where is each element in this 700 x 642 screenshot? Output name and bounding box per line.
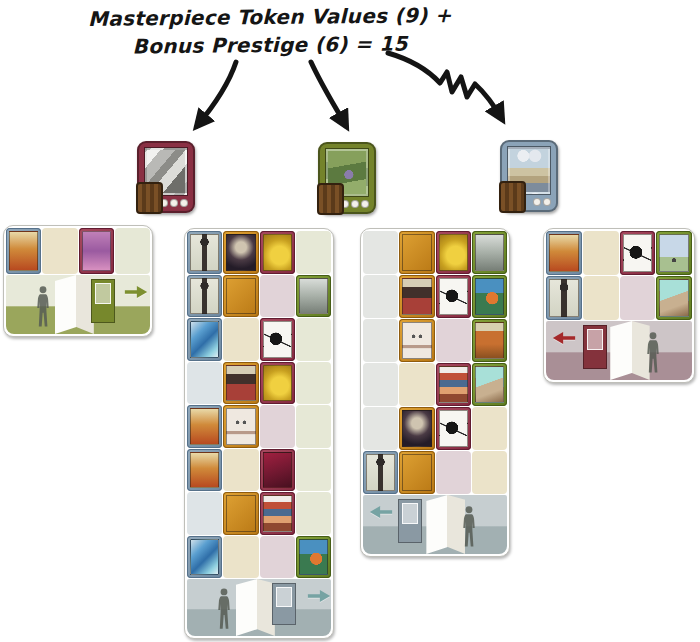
painting-blue-frame: [6, 228, 41, 274]
artwork-portrait-red: [226, 365, 255, 402]
empty-slot: [223, 318, 258, 361]
artwork-landscape-autumn: [475, 322, 504, 359]
painting-orange-frame: [399, 275, 434, 318]
artwork-figure: [190, 278, 219, 315]
artwork-landscape-colorful: [475, 278, 504, 315]
empty-slot: [296, 362, 331, 405]
artwork-landscape-beach: [475, 366, 504, 403]
artwork-figure: [549, 279, 579, 317]
artwork-landscape-beach: [659, 279, 689, 317]
annotation-title: Masterpiece Token Values (9) + Bonus Pre…: [60, 1, 481, 62]
painting-grid: [187, 231, 331, 578]
gallery-door: [272, 583, 296, 625]
painting-orange-frame: [399, 319, 434, 362]
artwork-masterpiece: [263, 321, 292, 358]
gallery-scene: [6, 275, 150, 334]
gallery-scene: [546, 321, 692, 380]
artwork-still-life: [9, 231, 38, 271]
artwork-landscape-sky: [659, 234, 689, 272]
empty-slot: [363, 231, 398, 274]
empty-slot: [363, 407, 398, 450]
gallery-board-left: [3, 225, 153, 337]
empty-slot: [296, 492, 331, 535]
artwork-landscape-colorful: [299, 539, 328, 576]
artwork-still-life: [190, 452, 219, 489]
painting-maroon-frame: [260, 362, 295, 405]
empty-slot: [296, 231, 331, 274]
artwork-purple-abstract: [82, 231, 111, 271]
token-value-pips: [533, 198, 551, 206]
value-pip: [361, 200, 369, 208]
direction-arrow-left: [552, 330, 576, 346]
crate-icon: [499, 181, 526, 213]
empty-slot: [472, 451, 507, 494]
painting-orange-frame: [399, 451, 434, 494]
crate-icon: [136, 182, 163, 214]
gallery-door: [91, 279, 115, 323]
direction-arrow-left: [369, 504, 393, 520]
artwork-sunset-stripes: [439, 366, 468, 403]
artwork-masterpiece: [623, 234, 653, 272]
empty-slot: [436, 319, 471, 362]
annotation-arrow-2: [311, 62, 346, 126]
painting-maroon-frame: [260, 231, 295, 274]
wall-corner: [236, 579, 275, 636]
visitor-silhouette: [458, 502, 480, 553]
annotation-arrow-1: [197, 62, 236, 126]
value-pip: [543, 198, 551, 206]
masterpiece-token-green: [318, 142, 376, 214]
crate-icon: [317, 183, 344, 215]
empty-slot: [223, 536, 258, 579]
gallery-scene: [187, 579, 331, 636]
painting-maroon-frame: [79, 228, 114, 274]
painting-orange-frame: [399, 231, 434, 274]
painting-maroon-frame: [436, 407, 471, 450]
artwork-portrait-dark: [402, 410, 431, 447]
value-pip: [351, 200, 359, 208]
gallery-scene: [363, 495, 507, 554]
painting-orange-frame: [223, 405, 258, 448]
empty-slot: [187, 492, 222, 535]
artwork-figure: [366, 454, 395, 491]
visitor-silhouette: [642, 328, 664, 379]
painting-blue-frame: [187, 405, 222, 448]
empty-slot: [436, 451, 471, 494]
painting-maroon-frame: [260, 492, 295, 535]
painting-blue-frame: [187, 536, 222, 579]
artwork-abstract-blue: [190, 321, 219, 358]
artwork-figure: [190, 234, 219, 271]
painting-grid: [546, 231, 692, 320]
masterpiece-token-maroon: [137, 141, 195, 213]
empty-slot: [363, 275, 398, 318]
gallery-board-right: [543, 228, 695, 383]
painting-blue-frame: [546, 231, 582, 275]
artwork-masterpiece: [439, 410, 468, 447]
door-painting: [402, 503, 418, 524]
painting-green-frame: [472, 231, 507, 274]
painting-green-frame: [656, 231, 692, 275]
painting-maroon-frame: [436, 275, 471, 318]
artwork-fish-teal: [226, 495, 255, 532]
empty-slot: [115, 228, 150, 274]
painting-orange-frame: [223, 492, 258, 535]
artwork-portrait-dark: [226, 234, 255, 271]
artwork-fish-teal: [402, 454, 431, 491]
value-pip: [533, 198, 541, 206]
empty-slot: [187, 362, 222, 405]
painting-blue-frame: [187, 275, 222, 318]
painting-maroon-frame: [260, 318, 295, 361]
empty-slot: [296, 449, 331, 492]
painting-grid: [363, 231, 507, 494]
artwork-masterpiece: [439, 278, 468, 315]
painting-blue-frame: [187, 231, 222, 274]
empty-slot: [223, 449, 258, 492]
gallery-board-mid-right: [360, 228, 510, 557]
painting-green-frame: [472, 363, 507, 406]
artwork-face-white: [226, 408, 255, 445]
artwork-abstract-yellow: [439, 234, 468, 271]
artwork-fish-teal: [402, 234, 431, 271]
visitor-silhouette: [213, 585, 235, 634]
painting-orange-frame: [223, 231, 258, 274]
painting-green-frame: [656, 276, 692, 320]
door-painting: [276, 587, 292, 607]
wall-corner: [55, 275, 94, 334]
empty-slot: [583, 276, 619, 320]
empty-slot: [260, 275, 295, 318]
empty-slot: [296, 405, 331, 448]
annotation-arrow-3: [388, 53, 502, 119]
painting-green-frame: [472, 319, 507, 362]
painting-maroon-frame: [260, 449, 295, 492]
visitor-silhouette: [32, 282, 54, 333]
empty-slot: [260, 536, 295, 579]
painting-blue-frame: [187, 318, 222, 361]
artwork-fish-teal: [226, 278, 255, 315]
value-pip: [170, 199, 178, 207]
gallery-board-mid-left: [184, 228, 334, 639]
rulebook-illustration: Masterpiece Token Values (9) + Bonus Pre…: [0, 0, 700, 642]
artwork-abstract-red: [263, 452, 292, 489]
gallery-door: [583, 325, 608, 369]
artwork-landscape-gray: [475, 234, 504, 271]
value-pip: [180, 199, 188, 207]
empty-slot: [399, 363, 434, 406]
painting-blue-frame: [187, 449, 222, 492]
artwork-still-life: [190, 408, 219, 445]
painting-green-frame: [296, 536, 331, 579]
door-painting: [587, 329, 603, 350]
token-value-pips: [341, 200, 369, 208]
painting-blue-frame: [363, 451, 398, 494]
artwork-portrait-red: [402, 278, 431, 315]
painting-maroon-frame: [620, 231, 656, 275]
artwork-sunset-stripes: [263, 495, 292, 532]
painting-green-frame: [296, 275, 331, 318]
direction-arrow-right: [307, 588, 331, 604]
title-line2: Bonus Prestige (6) = 15: [60, 29, 480, 62]
direction-arrow-right: [124, 284, 148, 300]
artwork-abstract-blue: [190, 539, 219, 576]
painting-orange-frame: [399, 407, 434, 450]
painting-maroon-frame: [436, 363, 471, 406]
empty-slot: [296, 318, 331, 361]
painting-grid: [6, 228, 150, 274]
empty-slot: [583, 231, 619, 275]
painting-blue-frame: [546, 276, 582, 320]
painting-orange-frame: [223, 362, 258, 405]
artwork-landscape-gray: [299, 278, 328, 315]
empty-slot: [42, 228, 77, 274]
artwork-face-white: [402, 322, 431, 359]
empty-slot: [260, 405, 295, 448]
artwork-abstract-yellow: [263, 234, 292, 271]
empty-slot: [363, 363, 398, 406]
painting-maroon-frame: [436, 231, 471, 274]
artwork-still-life: [549, 234, 579, 272]
artwork-abstract-yellow: [263, 365, 292, 402]
gallery-door: [398, 499, 422, 543]
title-line1: Masterpiece Token Values (9) +: [60, 1, 480, 34]
empty-slot: [472, 407, 507, 450]
door-painting: [95, 283, 111, 304]
empty-slot: [363, 319, 398, 362]
painting-orange-frame: [223, 275, 258, 318]
painting-green-frame: [472, 275, 507, 318]
empty-slot: [620, 276, 656, 320]
masterpiece-token-blue: [500, 140, 558, 212]
